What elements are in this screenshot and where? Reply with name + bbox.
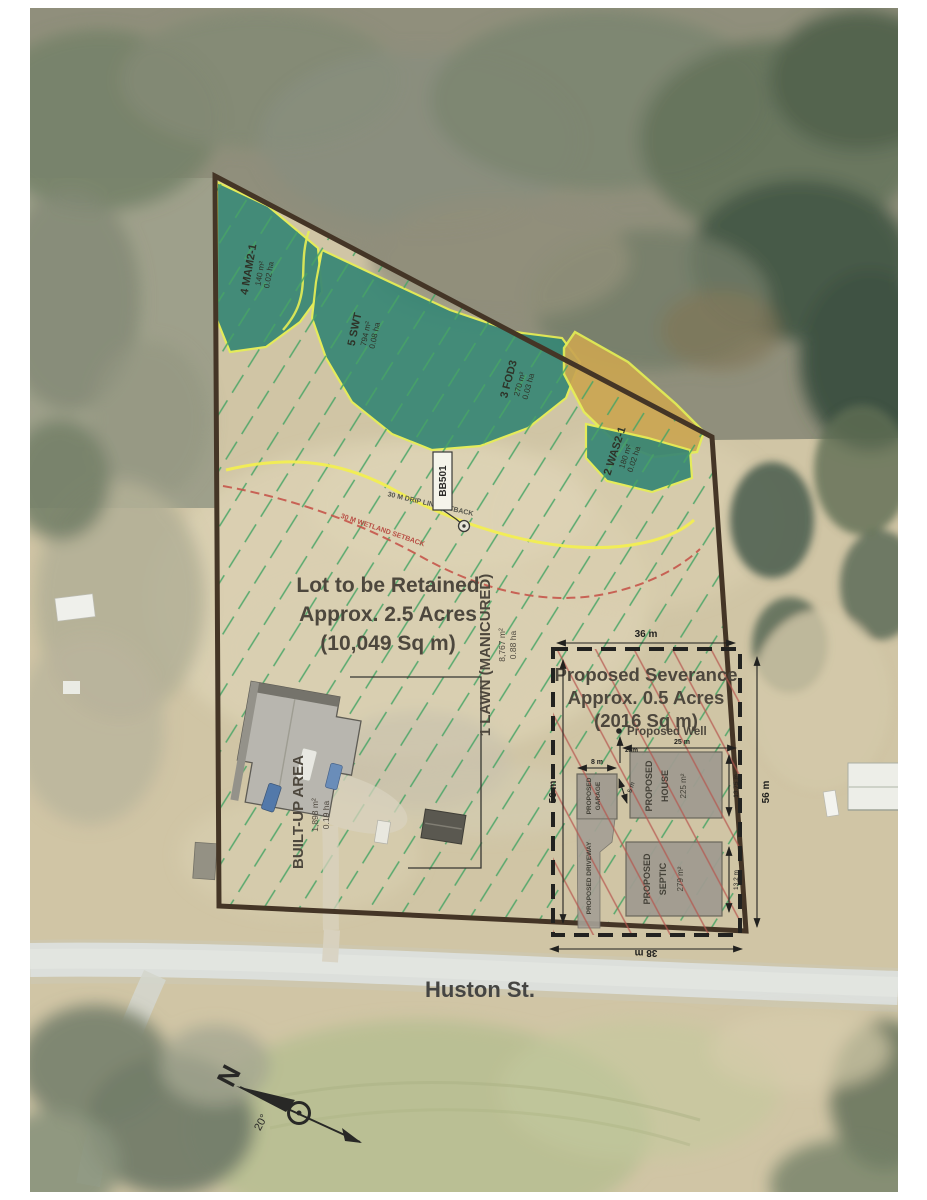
severance-sketch-map: 30 M DRIP LINE SETBACK 30 M WETLAND SETB… [0,0,927,1200]
scan-tint [30,8,898,1192]
severance-sketch-page: 30 M DRIP LINE SETBACK 30 M WETLAND SETB… [0,0,927,1200]
